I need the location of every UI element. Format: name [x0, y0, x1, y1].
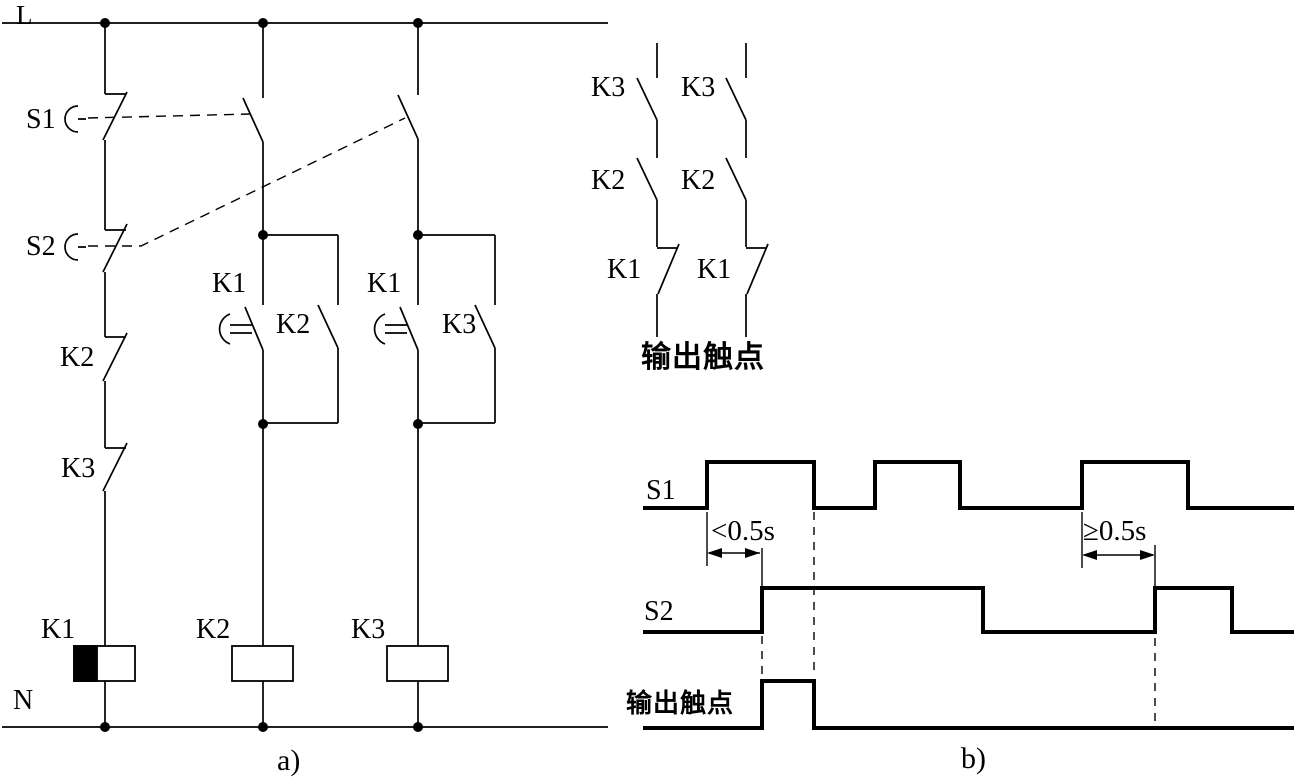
- k1-delay-symbol: [220, 314, 252, 344]
- dimension-arrows: [707, 548, 1155, 560]
- branch-wire: [418, 235, 495, 305]
- s2-nc-contact: [103, 224, 127, 272]
- arrowhead-right: [1140, 550, 1155, 560]
- annotation-long-press: ≥0.5s: [1083, 517, 1146, 546]
- chain1-k2-label: K2: [591, 167, 625, 195]
- chain1-k3-label: K3: [591, 74, 625, 102]
- panel-b-caption: b): [961, 744, 986, 774]
- chain2-k3-label: K3: [681, 74, 715, 102]
- s1-no-contact: [243, 98, 263, 142]
- chain2-k2-label: K2: [681, 167, 715, 195]
- k1-coil-label: K1: [41, 616, 75, 644]
- k3-nc-contact: [103, 443, 127, 491]
- col2-k1-delay-label: K1: [212, 270, 246, 298]
- branch-wire: [263, 348, 338, 423]
- relay-timing-figure: L N S1 S2 K2 K3 K1 K2 K3 K1 K2 K1 K3 a) …: [0, 0, 1294, 778]
- col3-k1-delay-label: K1: [367, 270, 401, 298]
- k1-delay-contact: [400, 307, 418, 350]
- col2-k2-contact-label: K2: [276, 311, 310, 339]
- k2-nc-contact: [103, 333, 127, 381]
- panel-a-caption: a): [277, 746, 300, 776]
- k3-no-contact: [475, 305, 495, 348]
- timing-s1-label: S1: [646, 477, 676, 505]
- pushbutton-actuators: [65, 106, 405, 260]
- s1-mechanical-link: [88, 114, 251, 118]
- timing-traces: [645, 462, 1292, 728]
- rung-column2: [220, 23, 338, 727]
- output-contacts-title: 输出触点: [641, 343, 765, 373]
- arrowhead-left: [1082, 550, 1097, 560]
- chain2-k1-label: K1: [697, 256, 731, 284]
- k1-nc-contact: [657, 244, 679, 294]
- s2-button-label: S2: [26, 233, 56, 261]
- chain1-k1-label: K1: [607, 256, 641, 284]
- s2-button-actuator: [65, 234, 86, 260]
- output-contact-chain2: [726, 43, 768, 337]
- output-contact-chain1: [637, 43, 679, 337]
- k2-coil-symbol: [232, 646, 293, 681]
- k3-no-contact: [637, 78, 657, 120]
- s1-button-label: S1: [26, 106, 56, 134]
- branch-wire: [263, 235, 338, 305]
- annotation-short-press: <0.5s: [711, 517, 775, 546]
- arrowhead-right: [745, 548, 760, 558]
- rail-n-label: N: [13, 687, 33, 715]
- k2-no-contact: [637, 158, 657, 200]
- arrowhead-left: [707, 548, 722, 558]
- s2-no-contact: [398, 95, 418, 139]
- waveform-trace-0: [645, 462, 1292, 508]
- power-rails: [2, 23, 608, 727]
- diagram-canvas: [0, 0, 1294, 778]
- s1-nc-contact: [103, 92, 127, 140]
- k2-coil-label: K2: [196, 616, 230, 644]
- waveform-trace-1: [645, 588, 1292, 632]
- rung-column3: [375, 23, 495, 727]
- branch-wire: [418, 348, 495, 423]
- k3-coil-label: K3: [351, 616, 385, 644]
- rung-column1: [74, 23, 135, 727]
- k2-no-contact: [726, 158, 746, 200]
- k2-no-contact: [318, 305, 338, 348]
- k2-nc-label: K2: [60, 344, 94, 372]
- k1-coil-black-segment: [74, 646, 97, 681]
- k1-delay-contact: [245, 307, 263, 350]
- timing-s2-label: S2: [644, 598, 674, 626]
- k3-nc-label: K3: [61, 455, 95, 483]
- k1-delay-symbol: [375, 314, 407, 344]
- s2-mechanical-link: [88, 118, 405, 246]
- k1-nc-contact: [746, 244, 768, 294]
- rail-l-label: L: [16, 2, 33, 29]
- timing-output-label: 输出触点: [626, 691, 734, 717]
- k3-coil-symbol: [387, 646, 448, 681]
- waveform-trace-2: [645, 681, 1292, 728]
- s1-button-actuator: [65, 106, 86, 132]
- k3-no-contact: [726, 78, 746, 120]
- col3-k3-contact-label: K3: [442, 311, 476, 339]
